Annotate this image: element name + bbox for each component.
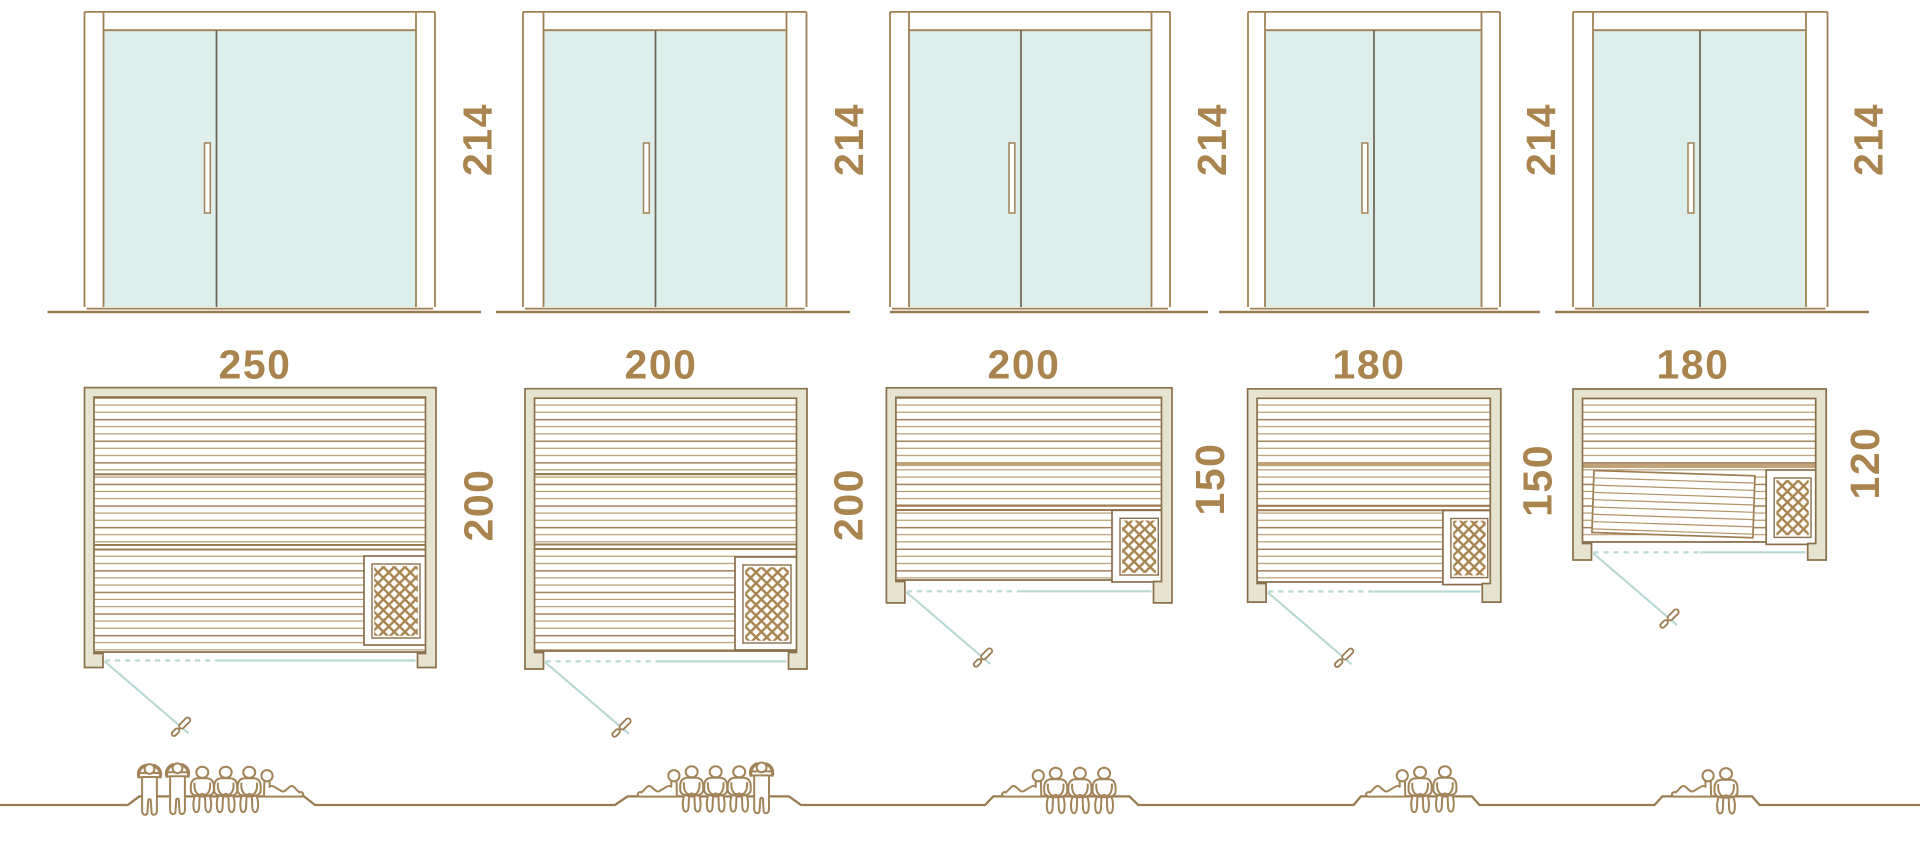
svg-text:150: 150 [1187,443,1233,516]
svg-text:214: 214 [455,103,501,176]
svg-text:200: 200 [825,468,871,541]
svg-text:200: 200 [625,342,698,388]
svg-text:250: 250 [219,342,292,388]
svg-text:180: 180 [1333,342,1406,388]
svg-text:200: 200 [988,342,1061,388]
svg-text:214: 214 [1189,103,1235,176]
svg-text:180: 180 [1657,342,1730,388]
svg-text:214: 214 [1846,103,1892,176]
svg-text:120: 120 [1842,427,1888,500]
svg-text:214: 214 [1518,103,1564,176]
svg-text:150: 150 [1515,444,1561,517]
svg-text:200: 200 [456,469,502,542]
svg-text:214: 214 [826,103,872,176]
